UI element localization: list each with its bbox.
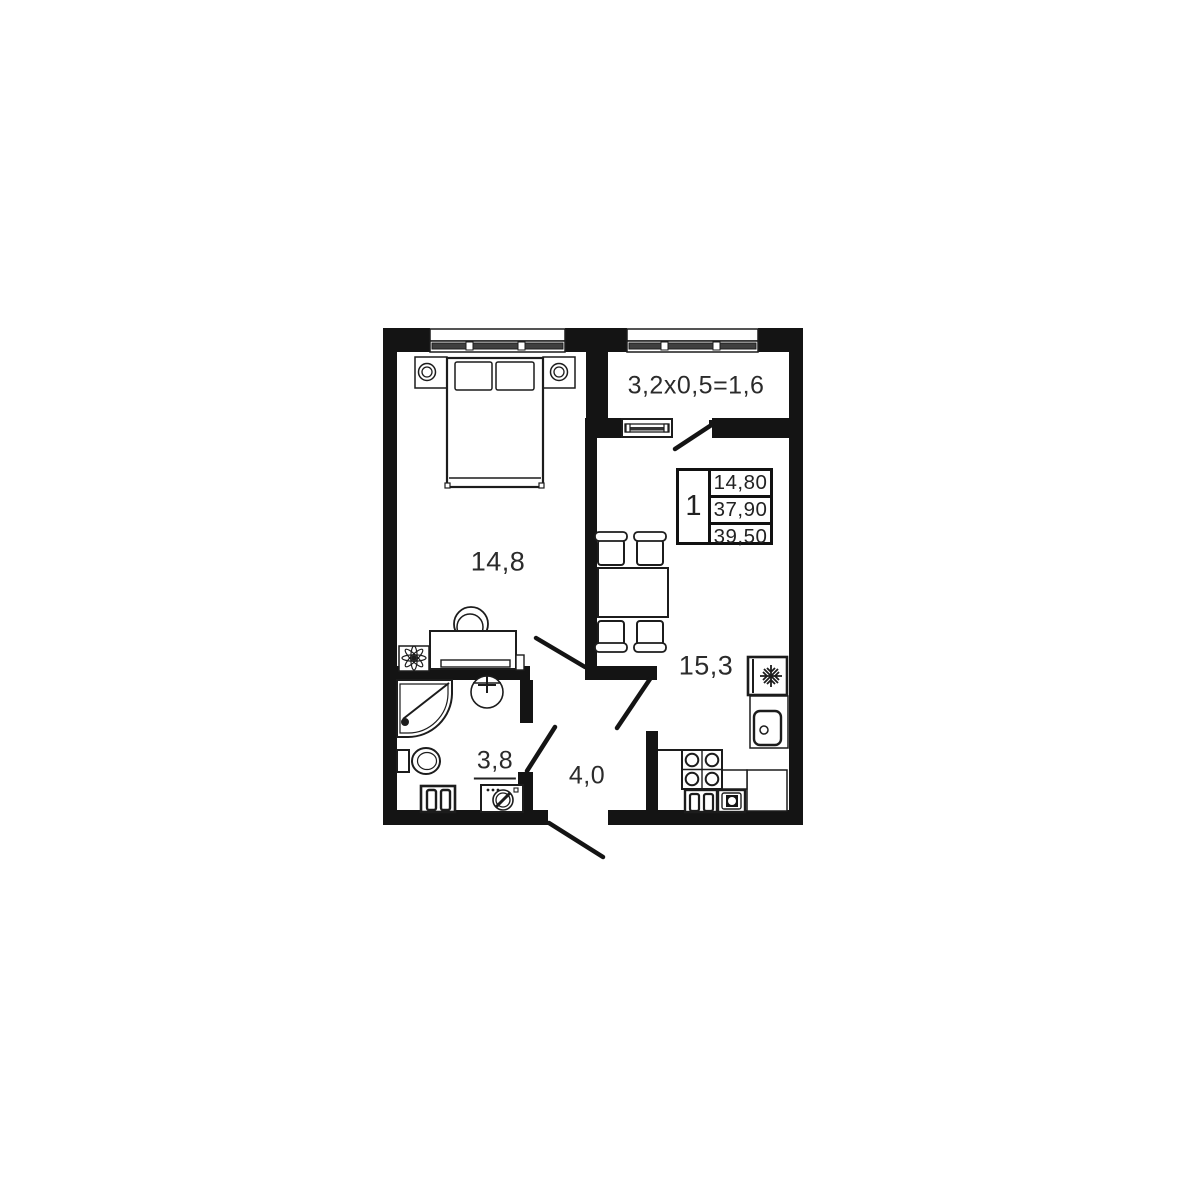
wall-top-1: [383, 328, 430, 352]
wall-hallway-kitchen: [646, 731, 658, 811]
info-room-count: 1: [679, 471, 711, 542]
washing-machine: [481, 785, 523, 812]
wall-bedroom-balcony: [586, 352, 608, 418]
info-areas: 14,80 37,90 39,50: [711, 471, 770, 542]
dining-set: [595, 532, 668, 652]
burner-icon: [706, 754, 719, 767]
drain-icon: [402, 719, 409, 726]
balcony-window: [627, 329, 758, 352]
entrance-door-leaf: [549, 823, 603, 857]
floor-plan-drawing: [0, 0, 1184, 1184]
wall-hallway-top: [585, 666, 657, 680]
chair: [637, 540, 663, 565]
wall-left: [383, 328, 397, 825]
kitchen-door-leaf: [617, 679, 650, 728]
desk-and-stool: [430, 607, 524, 670]
room-label-bedroom: 14,8: [471, 547, 526, 578]
room-label-bathroom: 3,8: [474, 747, 516, 780]
burner-icon: [686, 773, 699, 786]
balcony-dimension-label: 3,2x0,5=1,6: [628, 372, 765, 401]
bathroom-door-leaf: [527, 727, 555, 771]
dining-table: [598, 568, 668, 617]
info-living-area: 14,80: [711, 471, 770, 495]
bedroom-window: [430, 329, 565, 352]
base-cabinet: [685, 790, 717, 812]
burner-icon: [706, 773, 719, 786]
room-label-kitchen: 15,3: [679, 651, 734, 682]
wall-right: [789, 328, 803, 825]
chair: [637, 621, 663, 645]
balcony-door-leaf: [675, 424, 713, 449]
fridge: [748, 657, 787, 695]
burner-icon: [686, 754, 699, 767]
info-area-without-balcony: 37,90: [711, 495, 770, 522]
wall-bedroom-kitchen: [585, 418, 597, 672]
bed: [415, 357, 575, 488]
washbasin: [471, 676, 503, 708]
drain-icon: [760, 726, 768, 734]
apartment-floor-plan: 3,2x0,5=1,6 14,8 15,3 3,8 4,0 1 14,80 37…: [0, 0, 1184, 1184]
kitchen-sink-counter: [750, 696, 788, 748]
towel-cabinet: [421, 786, 455, 812]
oven: [718, 790, 745, 812]
bedroom-door-leaf: [536, 638, 585, 667]
room-label-hallway: 4,0: [569, 762, 605, 791]
wall-top-3: [758, 328, 803, 352]
chair: [598, 621, 624, 645]
stove: [682, 750, 722, 789]
shower: [397, 680, 452, 737]
toilet: [397, 748, 440, 774]
balcony-block-window: [622, 419, 672, 437]
plant-icon: [399, 646, 429, 671]
wall-bathroom-right-upper: [520, 680, 533, 723]
apartment-info-table: 1 14,80 37,90 39,50: [676, 468, 773, 545]
wall-top-2: [565, 328, 627, 352]
pillow: [496, 362, 534, 390]
chair: [598, 540, 624, 565]
wall-balcony-sill-right: [712, 418, 789, 438]
pillow: [455, 362, 492, 390]
info-total-area: 39,50: [711, 522, 770, 549]
